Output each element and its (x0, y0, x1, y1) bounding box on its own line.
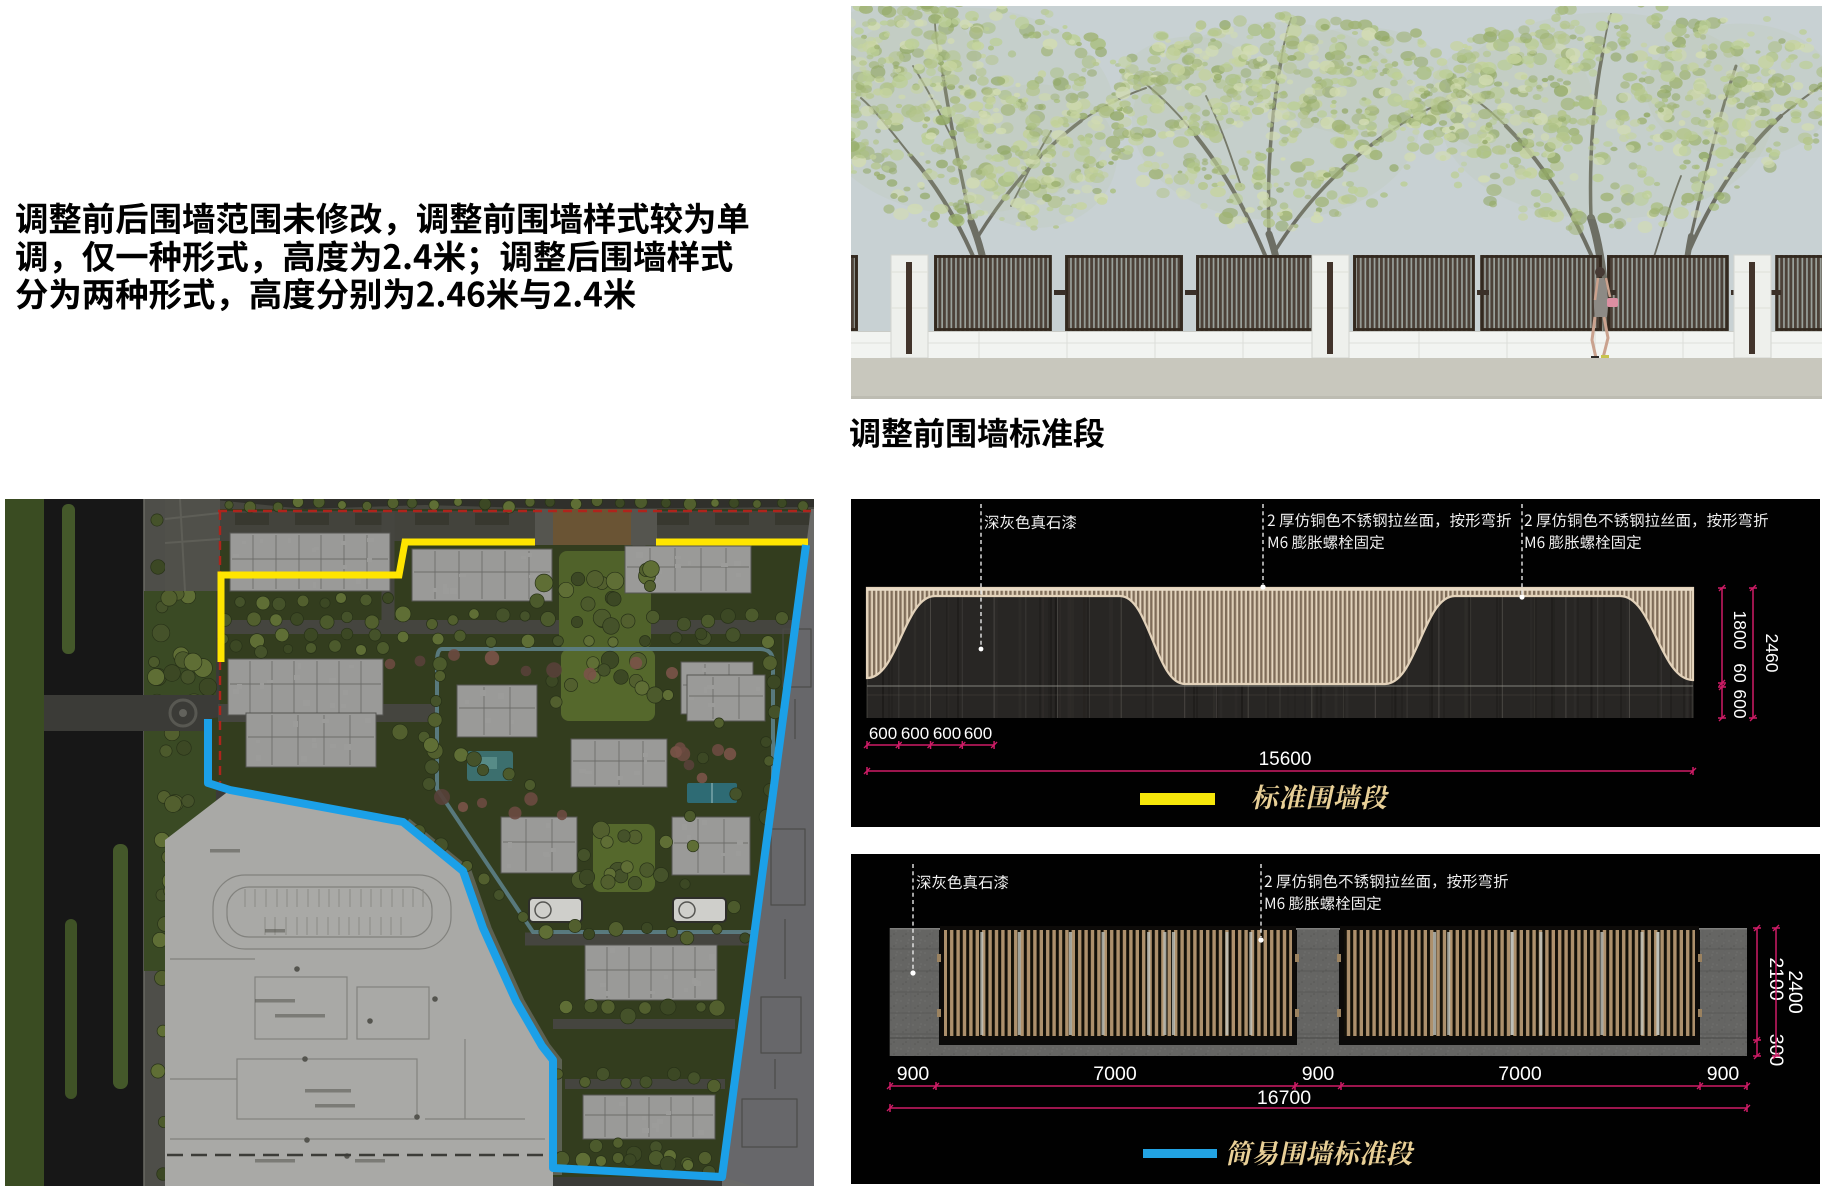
svg-text:900: 900 (1302, 1063, 1335, 1085)
svg-text:600: 600 (869, 724, 897, 743)
svg-text:900: 900 (1707, 1063, 1740, 1085)
svg-text:600: 600 (933, 724, 961, 743)
svg-text:7000: 7000 (1498, 1063, 1542, 1085)
svg-text:7000: 7000 (1093, 1063, 1137, 1085)
svg-text:600: 600 (964, 724, 992, 743)
svg-text:900: 900 (897, 1063, 930, 1085)
svg-text:2460: 2460 (1762, 634, 1782, 673)
svg-text:2400: 2400 (1784, 970, 1806, 1014)
svg-text:15600: 15600 (1259, 749, 1312, 770)
svg-text:600: 600 (901, 724, 929, 743)
svg-text:1800: 1800 (1730, 611, 1750, 650)
svg-text:60: 60 (1730, 663, 1750, 683)
svg-text:600: 600 (1730, 689, 1750, 718)
svg-text:16700: 16700 (1257, 1087, 1311, 1109)
